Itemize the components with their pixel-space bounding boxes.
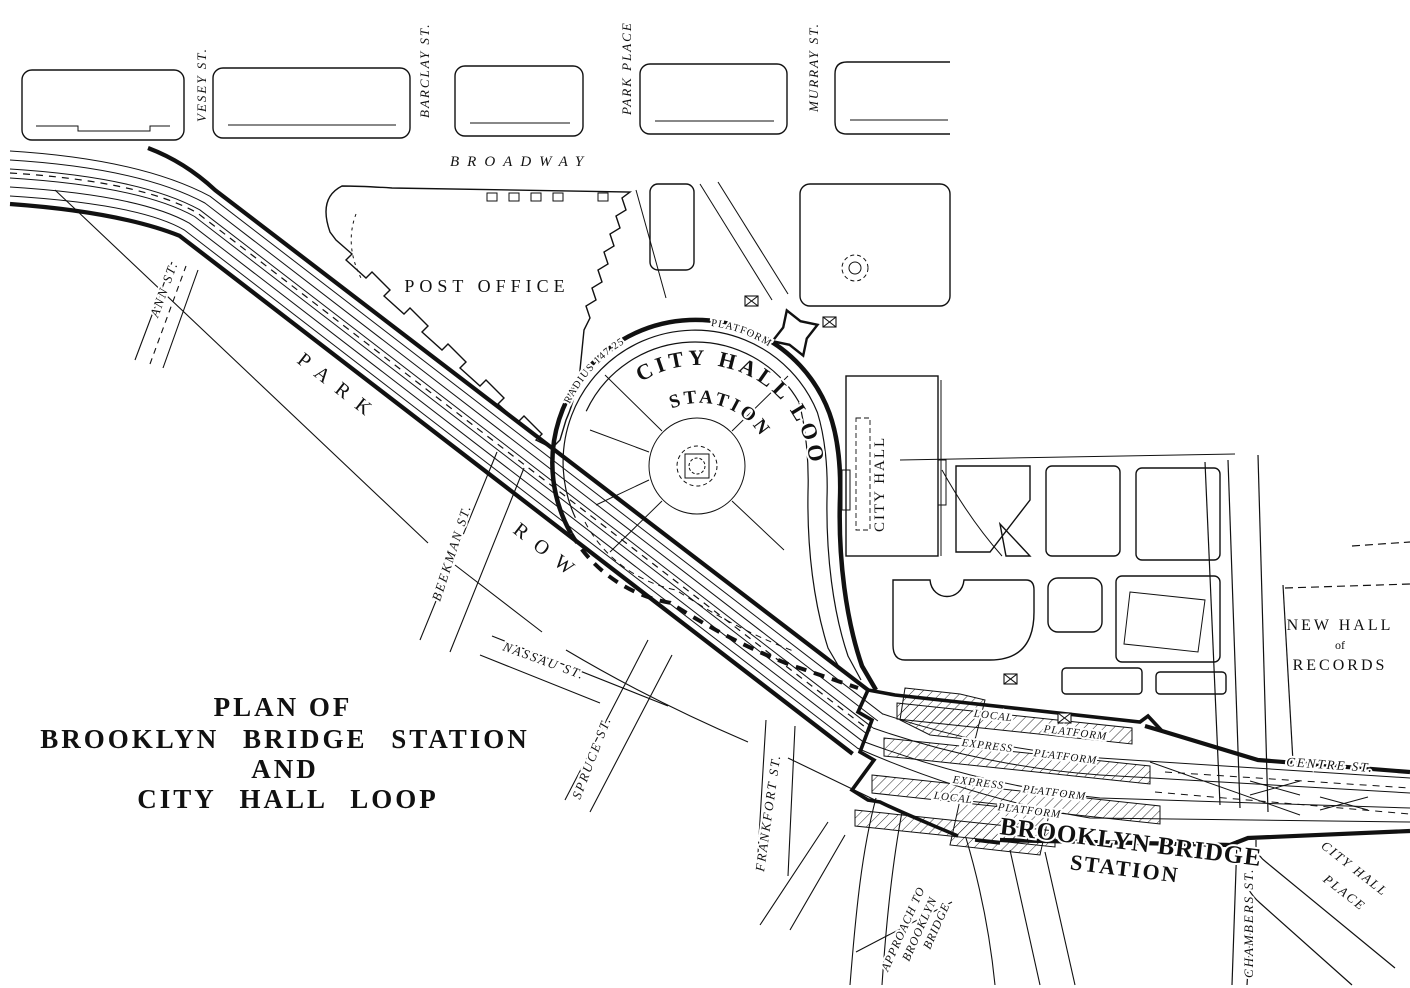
city-hall-wing — [938, 460, 946, 505]
street-label-ann: ANN ST. — [146, 259, 180, 320]
track-crossover — [1250, 781, 1300, 795]
street-label-beekman: BEEKMAN ST. — [429, 502, 475, 603]
fountain-inner — [689, 458, 705, 474]
street-label-park-place: PARK PLACE — [619, 21, 634, 116]
city-hall-place-edge — [1256, 840, 1395, 968]
city-hall-inner-detail — [856, 418, 870, 530]
stairway-boxes — [745, 296, 836, 327]
new-hall-block-top-dashed — [1285, 584, 1410, 588]
station-plan-map: VESEY ST. BARCLAY ST. PARK PLACE MURRAY … — [0, 0, 1410, 988]
colonnade-mark — [553, 193, 563, 201]
landmark-label-new-hall-2: of — [1335, 638, 1345, 652]
street-line — [700, 184, 772, 300]
park-row-curb — [55, 190, 428, 543]
city-block — [650, 184, 694, 270]
street-line — [942, 470, 1002, 556]
city-block — [1046, 466, 1120, 556]
street-line — [760, 822, 845, 930]
map-canvas: VESEY ST. BARCLAY ST. PARK PLACE MURRAY … — [0, 0, 1410, 988]
platform-express-north — [884, 738, 1150, 784]
street-line — [900, 454, 1235, 460]
park-row-curb — [455, 565, 542, 632]
track-wall-northeast — [148, 148, 868, 690]
city-hall-building — [846, 376, 938, 556]
track-line — [10, 169, 873, 728]
city-block — [1000, 524, 1030, 556]
city-block — [640, 64, 787, 134]
block-circle-structure — [842, 255, 868, 281]
park-path-circle — [649, 418, 745, 514]
fountain-outer — [677, 446, 717, 486]
new-hall-block-edge — [1283, 585, 1293, 762]
block-inner-line — [36, 126, 170, 131]
map-title-line-1: PLAN OF — [214, 692, 353, 722]
track-centerline-dashed — [10, 173, 870, 731]
street-line — [1205, 462, 1220, 805]
street-label-barclay: BARCLAY ST. — [417, 23, 432, 118]
approach-street-edge — [966, 838, 995, 985]
block-inner-parallelogram — [1124, 592, 1205, 652]
city-block — [1048, 578, 1102, 632]
landmark-label-post-office: POST OFFICE — [404, 276, 569, 296]
street-label-row: ROW — [509, 519, 588, 587]
street-line — [1010, 850, 1075, 985]
street-line — [718, 182, 788, 294]
loop-station-name2-textpath: STATION — [667, 387, 776, 442]
post-office-colonnade — [487, 193, 608, 201]
street-label-vesey: VESEY ST. — [194, 47, 209, 122]
park-row-curb — [566, 650, 748, 742]
street-label-chambers: CHAMBERS ST. — [1241, 868, 1256, 978]
city-block — [213, 68, 410, 138]
street-label-frankfort: FRANKFORT ST. — [752, 753, 784, 874]
map-title-line-2: BROOKLYN BRIDGE STATION — [40, 724, 530, 754]
map-title-line-4: CITY HALL LOOP — [137, 784, 439, 814]
city-hall-group — [842, 376, 1235, 556]
station-entrance-kiosk — [764, 302, 826, 364]
landmark-label-new-hall-3: RECORDS — [1293, 657, 1388, 674]
street-label-spruce: SPRUCE ST. — [569, 714, 614, 801]
beekman-street-lines — [420, 452, 524, 652]
street-label-centre: CENTRE ST. — [1286, 754, 1375, 775]
southwest-streets-group — [55, 190, 1075, 985]
city-block-notched — [893, 580, 1034, 660]
labels: VESEY ST. BARCLAY ST. PARK PLACE MURRAY … — [0, 0, 1393, 978]
stairway-x — [745, 296, 758, 306]
colonnade-mark — [598, 193, 608, 201]
track-crossover — [1320, 797, 1368, 810]
street-label-murray: MURRAY ST. — [806, 22, 821, 113]
park-path — [590, 430, 649, 505]
street-label-nassau: NASSAU ST. — [500, 638, 587, 682]
block-circle-structure-inner — [849, 262, 861, 274]
colonnade-mark — [509, 193, 519, 201]
city-block — [455, 66, 583, 136]
city-block — [22, 70, 184, 140]
east-blocks-group — [893, 466, 1226, 694]
street-line — [636, 190, 666, 298]
street-label-broadway: BROADWAY — [450, 154, 591, 170]
city-block — [800, 184, 950, 306]
city-block — [835, 62, 950, 134]
track-line — [10, 187, 862, 741]
colonnade-mark — [487, 193, 497, 201]
track-dashed-line — [1155, 792, 1410, 814]
landmark-label-new-hall-1: NEW HALL — [1287, 617, 1394, 634]
map-title-line-3: AND — [251, 754, 319, 784]
city-block — [956, 466, 1030, 552]
track-line — [10, 178, 868, 735]
city-block — [1062, 668, 1142, 694]
city-hall-place-edge — [1248, 888, 1352, 985]
colonnade-mark — [531, 193, 541, 201]
loop-station-name-arc2: STATION — [667, 387, 776, 442]
stairway-x — [823, 317, 836, 327]
landmark-label-city-hall: CITY HALL — [872, 436, 888, 532]
street-dashed-line — [1352, 542, 1410, 546]
